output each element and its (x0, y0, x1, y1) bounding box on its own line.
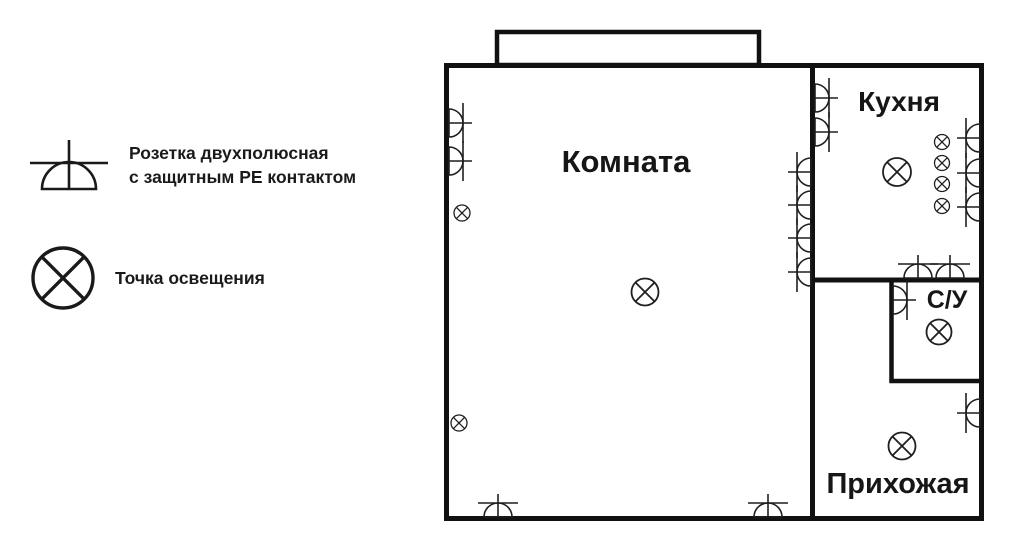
socket-symbol (478, 494, 518, 517)
balcony-outline (497, 32, 759, 65)
socket-symbol (788, 218, 811, 258)
light-point-symbol (454, 205, 470, 221)
light-point-symbol (935, 177, 950, 192)
socket-symbol (748, 494, 788, 517)
socket-symbol (957, 118, 980, 158)
light-point-symbol (927, 320, 952, 345)
room-label-komnata: Комната (562, 144, 692, 179)
socket-symbol (957, 187, 980, 227)
room-label-su: С/У (927, 286, 968, 314)
outer-walls (447, 66, 982, 519)
light-point-symbol (883, 158, 911, 186)
socket-symbol (449, 141, 472, 181)
floor-plan: КомнатаКухняС/УПрихожая (0, 0, 1024, 556)
light-point-symbol (632, 279, 659, 306)
light-point-symbol (889, 433, 916, 460)
socket-symbol (957, 393, 980, 433)
light-point-symbol (935, 199, 950, 214)
symbols-layer: КомнатаКухняС/УПрихожая (449, 78, 980, 517)
socket-symbol (930, 255, 970, 278)
socket-symbol (893, 280, 916, 320)
light-point-symbol (935, 135, 950, 150)
room-label-kuhnya: Кухня (858, 86, 940, 117)
socket-symbol (788, 252, 811, 292)
socket-symbol (788, 185, 811, 225)
floor-plan-page: Розетка двухполюсная с защитным PE конта… (0, 0, 1024, 556)
socket-symbol (815, 112, 838, 152)
light-point-symbol (451, 415, 467, 431)
socket-symbol (957, 153, 980, 193)
room-label-prihozhaya: Прихожая (826, 468, 969, 500)
socket-symbol (788, 152, 811, 192)
light-point-symbol (935, 156, 950, 171)
socket-symbol (449, 103, 472, 143)
socket-symbol (898, 255, 938, 278)
socket-symbol (815, 78, 838, 118)
